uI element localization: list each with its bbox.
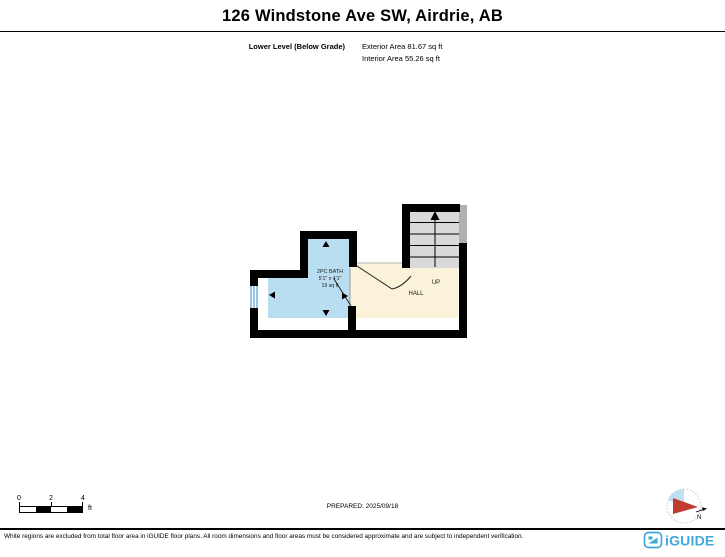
wall-stub [348, 306, 356, 330]
wall-top-left [250, 270, 308, 278]
header-divider [0, 31, 725, 32]
compass-icon: N [658, 484, 714, 530]
wall-stairs-top [402, 204, 460, 212]
scale-tick-label: 0 [14, 495, 24, 502]
partial-wall [459, 205, 467, 243]
bath-room-name: 2PC BATH [317, 269, 343, 275]
footer-divider [0, 528, 725, 530]
window-icon [250, 286, 259, 308]
footer-disclaimer: White regions are excluded from total fl… [4, 533, 614, 540]
interior-area: Interior Area 55.26 sq ft [362, 54, 440, 63]
wall-right [459, 243, 467, 338]
north-label: N [697, 515, 701, 521]
hall-room-fill [350, 263, 458, 318]
scale-tick-label: 4 [78, 495, 88, 502]
north-arrow-head-icon [702, 507, 707, 511]
stairs-up-label: UP [432, 280, 440, 286]
exterior-area: Exterior Area 81.67 sq ft [362, 42, 442, 51]
wall-bath-right [349, 231, 357, 267]
wall-bottom [250, 330, 467, 338]
iguide-logo-icon [645, 533, 662, 548]
iguide-logo: iGUIDE [643, 530, 719, 552]
level-label: Lower Level (Below Grade) [0, 42, 345, 51]
iguide-logo-text: iGUIDE [665, 533, 714, 549]
hall-room-name: HALL [408, 291, 424, 297]
wall-bath-top [300, 231, 357, 239]
floor-plan: 2PC BATH 5'1" x 4'1" 19 sq ft HALL UP [246, 200, 472, 342]
scale-tick-label: 2 [46, 495, 56, 502]
floor-plan-page: 126 Windstone Ave SW, Airdrie, AB Lower … [0, 0, 725, 557]
bath-room-dimensions: 5'1" x 4'1" [319, 276, 342, 282]
wall-stairs-left [402, 204, 410, 268]
page-title: 126 Windstone Ave SW, Airdrie, AB [0, 7, 725, 26]
bath-room-area: 19 sq ft [321, 283, 339, 289]
prepared-date: PREPARED: 2025/09/18 [0, 503, 725, 510]
wall-bath-left [300, 231, 308, 278]
